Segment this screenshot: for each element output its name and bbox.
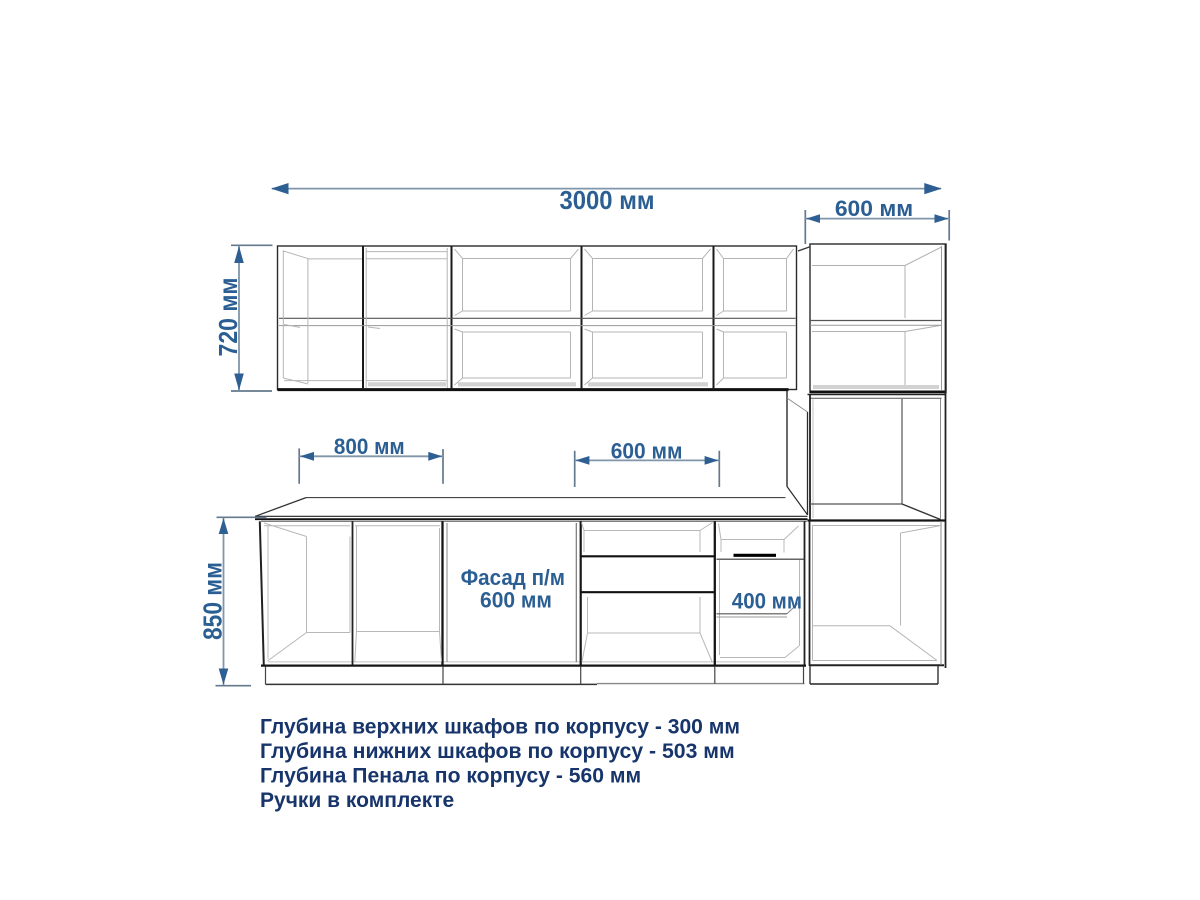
svg-text:600 мм: 600 мм — [835, 196, 913, 221]
svg-text:Фасад п/м: Фасад п/м — [461, 565, 565, 590]
svg-text:Глубина Пенала по корпусу - 56: Глубина Пенала по корпусу - 560 мм — [260, 763, 641, 787]
svg-text:Ручки в комплекте: Ручки в комплекте — [260, 788, 454, 812]
svg-text:Глубина нижних шкафов по корпу: Глубина нижних шкафов по корпусу - 503 м… — [260, 739, 735, 763]
svg-text:400 мм: 400 мм — [732, 589, 802, 614]
svg-text:600 мм: 600 мм — [480, 588, 552, 613]
svg-text:3000 мм: 3000 мм — [560, 185, 655, 215]
svg-text:850 мм: 850 мм — [197, 562, 227, 640]
svg-text:600 мм: 600 мм — [611, 438, 683, 463]
svg-text:720 мм: 720 мм — [213, 278, 243, 357]
svg-text:Глубина верхних шкафов по корп: Глубина верхних шкафов по корпусу - 300 … — [260, 715, 740, 739]
svg-text:800 мм: 800 мм — [334, 434, 405, 459]
